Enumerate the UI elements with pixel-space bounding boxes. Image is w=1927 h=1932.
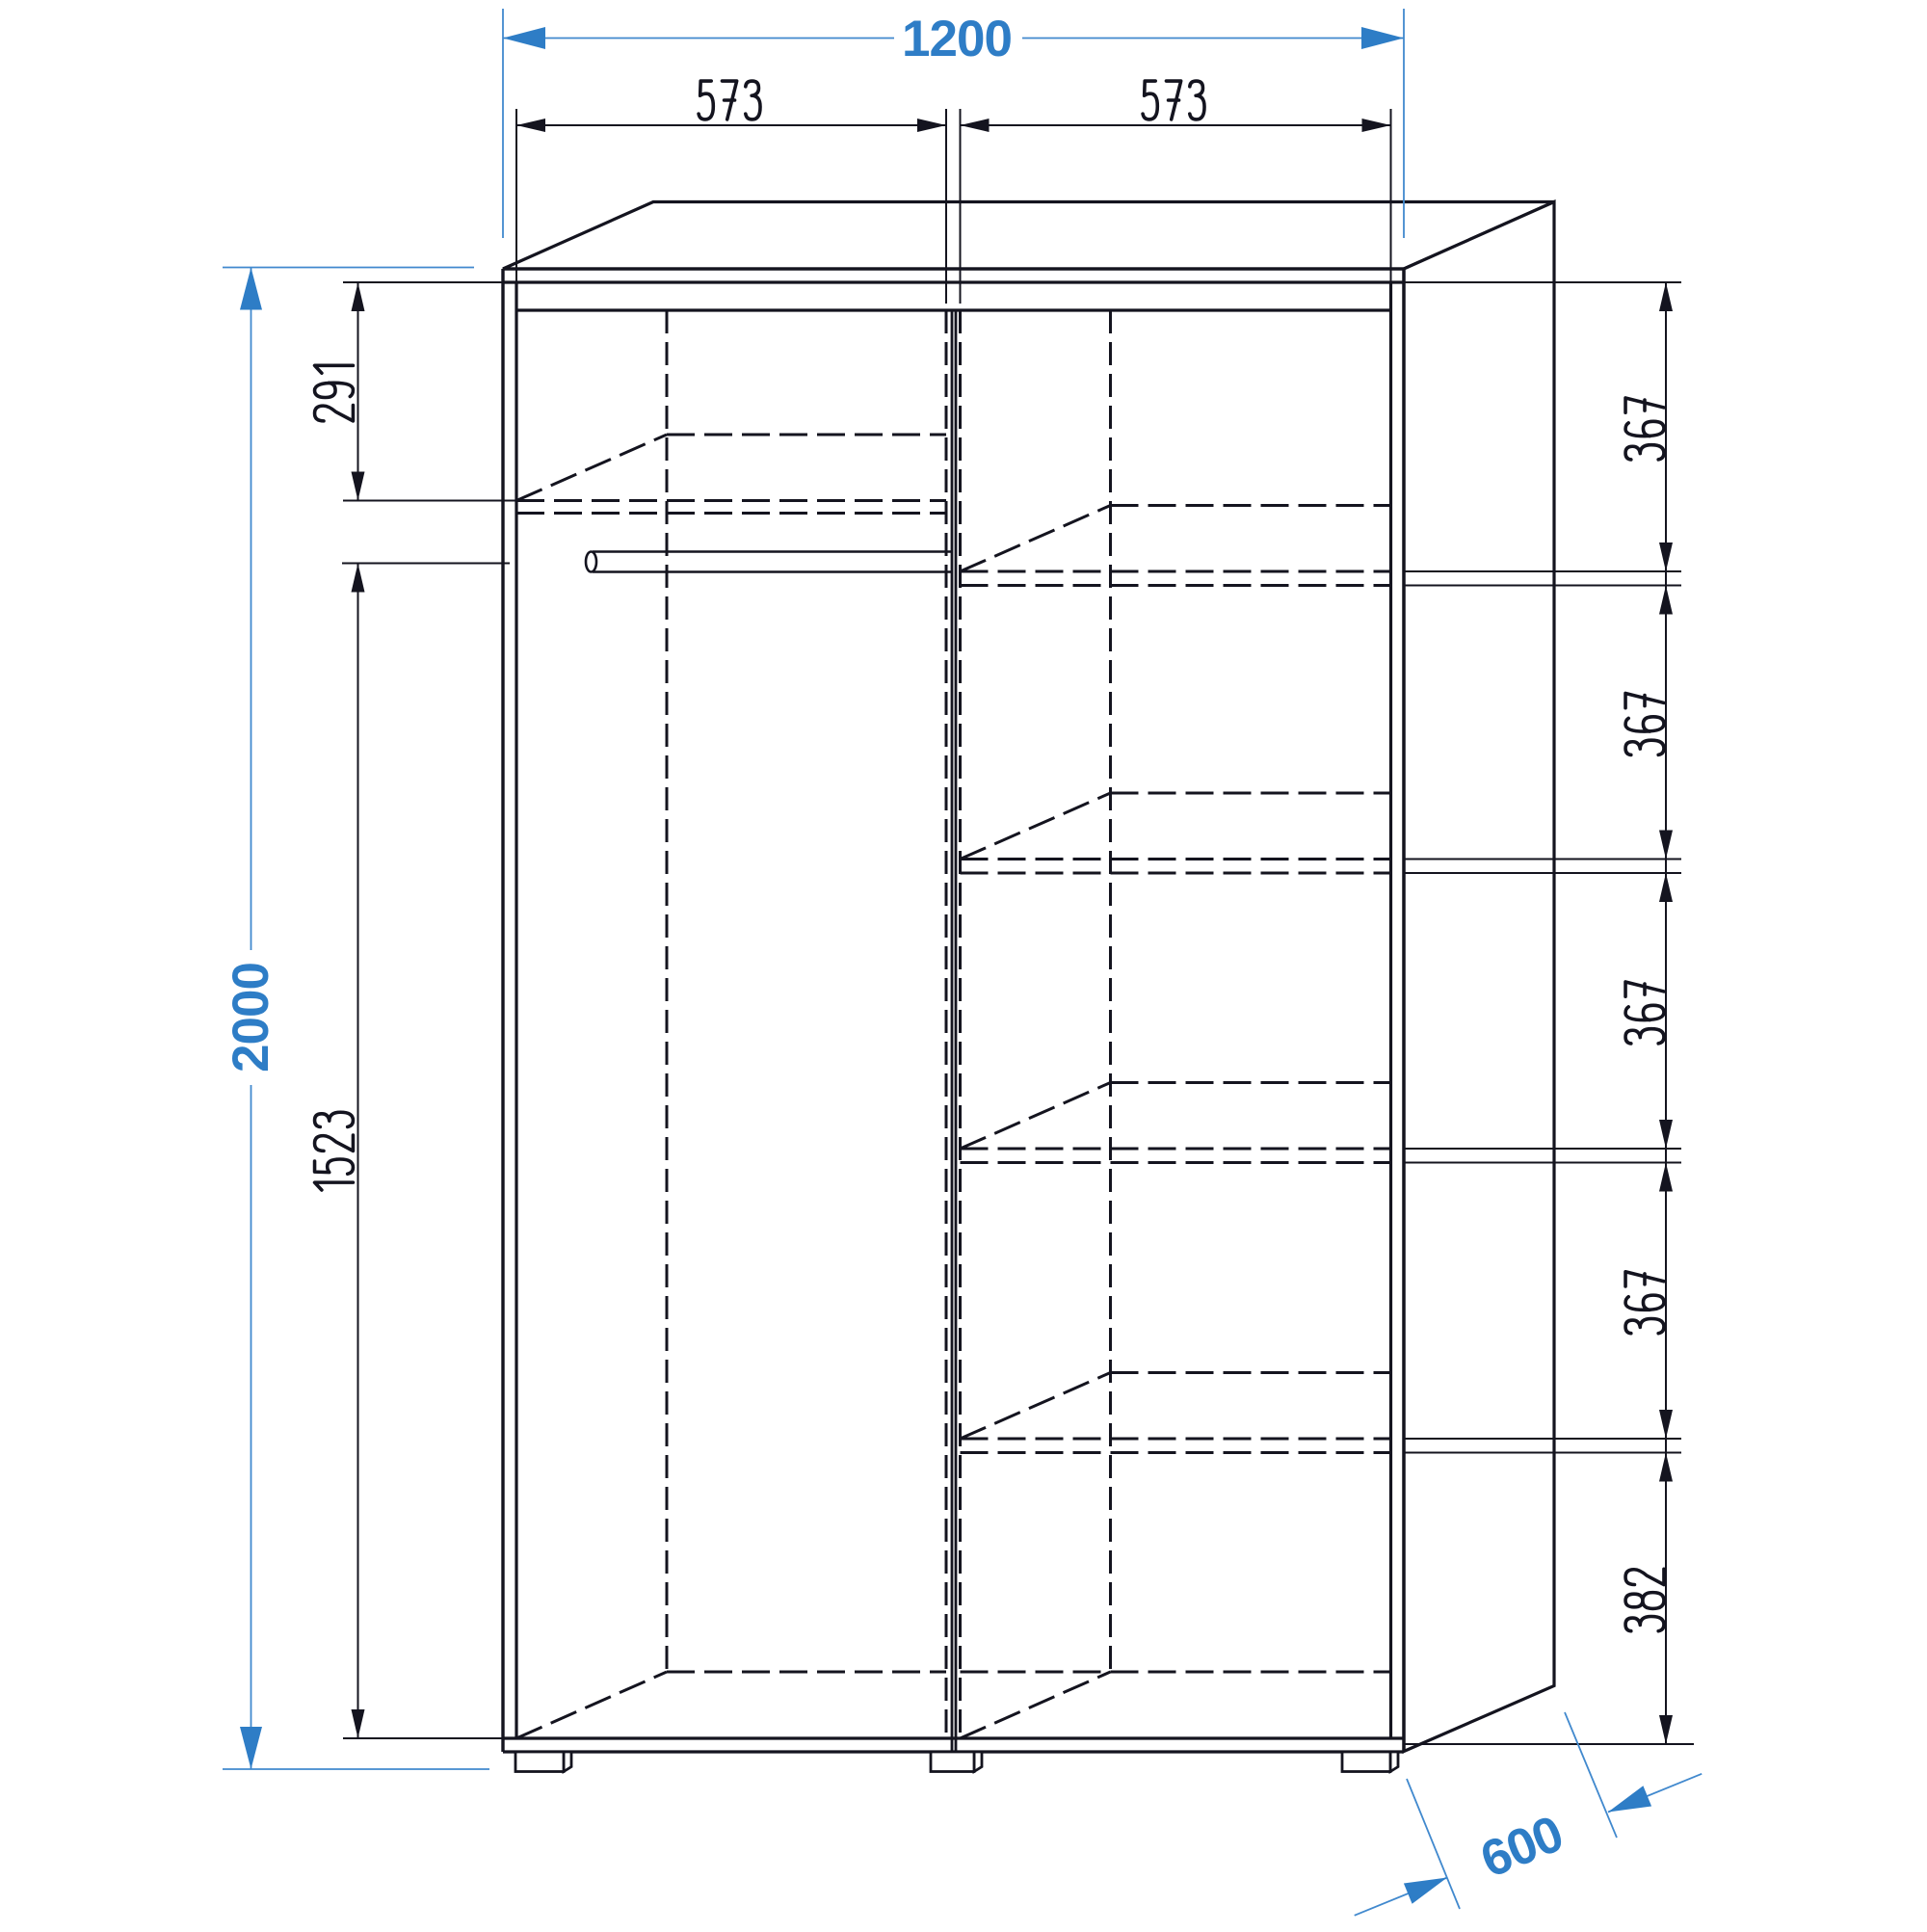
svg-text:1200: 1200 <box>902 11 1012 67</box>
svg-text:2000: 2000 <box>223 963 279 1072</box>
